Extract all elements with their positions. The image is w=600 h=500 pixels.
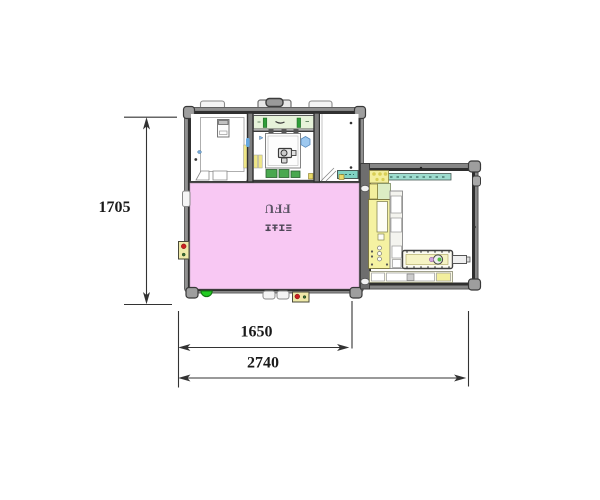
svg-text:FFU: FFU [264,202,290,217]
svg-text:2740: 2740 [247,355,279,372]
svg-text:1705: 1705 [99,199,131,216]
svg-text:1650: 1650 [241,324,273,341]
